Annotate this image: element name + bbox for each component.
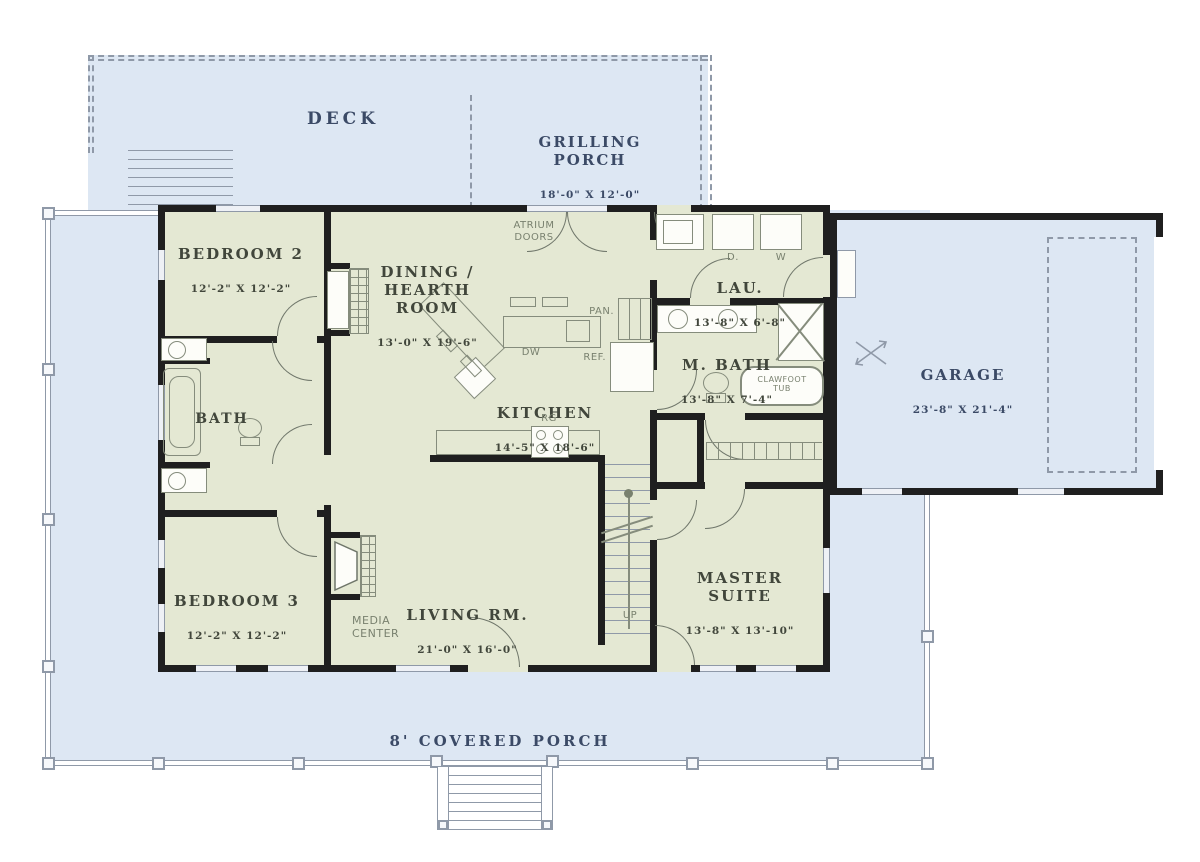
bath-label: BATH xyxy=(180,392,264,447)
dining-name: DINING / HEARTH ROOM xyxy=(350,263,505,317)
master-suite-dims: 13'-8" X 13'-10" xyxy=(665,625,815,638)
media-center-wall xyxy=(324,532,331,600)
closet-rod xyxy=(706,442,822,460)
porch-post xyxy=(42,207,55,220)
porch-post xyxy=(921,630,934,643)
kitchen-label: KITCHEN 14'-5" X 18'-6" xyxy=(470,385,620,474)
island-sink xyxy=(566,320,590,342)
media-center-shelving xyxy=(360,535,376,597)
porch-rail xyxy=(45,210,51,766)
front-steps xyxy=(437,766,553,830)
garage-door-dashed-line xyxy=(1047,237,1137,473)
wall xyxy=(598,455,605,645)
stair-arrow-dot xyxy=(624,489,633,498)
deck-rail xyxy=(88,55,708,61)
living-dims: 21'-0" X 16'-0" xyxy=(390,644,545,657)
laundry-dims: 13'-8" X 6'-8" xyxy=(665,317,815,330)
porch-post xyxy=(42,513,55,526)
porch-rail xyxy=(45,210,160,216)
laundry-label: LAU. 13'-8" X 6'-8" xyxy=(665,260,815,349)
window xyxy=(158,250,165,280)
master-bath-name: M. BATH xyxy=(652,356,802,374)
porch-post xyxy=(542,820,552,830)
clawfoot-tub-label: CLAWFOOT TUB xyxy=(748,375,816,393)
grilling-porch-name: GRILLING PORCH xyxy=(506,133,674,169)
covered-porch-name: 8' COVERED PORCH xyxy=(380,732,620,750)
covered-porch-label: 8' COVERED PORCH xyxy=(380,713,620,769)
master-suite-label: MASTER SUITE 13'-8" X 13'-10" xyxy=(665,550,815,657)
porch-post xyxy=(292,757,305,770)
wall xyxy=(650,482,705,489)
wall xyxy=(745,482,830,489)
window xyxy=(268,665,308,672)
laundry-name: LAU. xyxy=(665,279,815,297)
pantry-label: PAN. xyxy=(582,306,614,318)
garage-label: GARAGE 23'-8" X 21'-4" xyxy=(878,347,1048,436)
grilling-porch-dims: 18'-0" X 12'-0" xyxy=(506,189,674,202)
wall xyxy=(165,510,277,517)
window xyxy=(823,548,830,593)
bedroom3-dims: 12'-2" X 12'-2" xyxy=(163,630,311,643)
window xyxy=(158,540,165,568)
bedroom3-name: BEDROOM 3 xyxy=(163,592,311,610)
porch-post xyxy=(826,757,839,770)
window xyxy=(756,665,796,672)
tv-icon xyxy=(333,540,359,592)
atrium-doors-label: ATRIUM DOORS xyxy=(505,220,563,243)
wall xyxy=(830,213,1163,220)
garage-bench xyxy=(837,250,856,298)
wall xyxy=(317,336,331,343)
door-opening xyxy=(655,665,691,672)
stairs-up-label: UP xyxy=(616,610,644,622)
range-label: RG xyxy=(535,413,563,425)
window xyxy=(862,488,902,495)
sink xyxy=(168,472,186,490)
refrigerator-label: REF. xyxy=(570,352,606,364)
window xyxy=(216,205,260,212)
porch-post xyxy=(921,757,934,770)
bedroom2-label: BEDROOM 2 12'-2" X 12'-2" xyxy=(168,226,314,315)
sink xyxy=(168,341,186,359)
dining-label: DINING / HEARTH ROOM 13'-0" X 19'-6" xyxy=(350,244,505,369)
porch-post xyxy=(686,757,699,770)
pantry-cabinet xyxy=(618,298,652,340)
bar-stool xyxy=(510,297,536,307)
bedroom2-dims: 12'-2" X 12'-2" xyxy=(168,283,314,296)
kitchen-dims: 14'-5" X 18'-6" xyxy=(470,442,620,455)
bar-stool xyxy=(542,297,568,307)
garage-dims: 23'-8" X 21'-4" xyxy=(878,404,1048,417)
porch-post xyxy=(42,757,55,770)
porch-post xyxy=(42,660,55,673)
wall xyxy=(317,510,331,517)
deck-steps xyxy=(128,150,233,210)
bedroom2-name: BEDROOM 2 xyxy=(168,245,314,263)
dryer xyxy=(712,214,754,250)
deck-rail xyxy=(88,55,94,153)
deck-porch-divider xyxy=(470,95,472,208)
window xyxy=(700,665,736,672)
media-center-label: MEDIA CENTER xyxy=(352,615,416,640)
washer-label: W xyxy=(771,252,791,264)
master-suite-name: MASTER SUITE xyxy=(665,569,815,605)
deck-label: DECK xyxy=(283,90,403,149)
garage-name: GARAGE xyxy=(878,366,1048,384)
porch-post xyxy=(152,757,165,770)
fireplace-wall xyxy=(324,330,350,336)
laundry-sink xyxy=(663,220,693,244)
bedroom3-label: BEDROOM 3 12'-2" X 12'-2" xyxy=(163,573,311,662)
fireplace-firebox xyxy=(327,271,349,329)
washer xyxy=(760,214,802,250)
porch-post xyxy=(438,820,448,830)
deck-name: DECK xyxy=(283,109,403,129)
porch-post xyxy=(42,363,55,376)
dining-dims: 13'-0" X 19'-6" xyxy=(350,337,505,350)
fireplace-wall xyxy=(324,263,350,269)
grilling-porch-columns xyxy=(700,55,712,210)
garage-service-door-opening xyxy=(823,255,830,297)
window xyxy=(1018,488,1064,495)
window xyxy=(196,665,236,672)
dryer-label: D. xyxy=(723,252,743,264)
wall xyxy=(324,600,331,672)
bath-name: BATH xyxy=(180,411,264,428)
garage-door-opening xyxy=(1154,237,1165,470)
master-bath-dims: 13'-8" X 7'-4" xyxy=(652,394,802,407)
porch-rail xyxy=(924,492,930,766)
grilling-porch-label: GRILLING PORCH 18'-0" X 12'-0" xyxy=(506,114,674,221)
wall xyxy=(830,213,837,495)
floor-plan: DECK GRILLING PORCH 18'-0" X 12'-0" GARA… xyxy=(0,0,1200,862)
dishwasher-label: DW xyxy=(516,347,546,359)
stair-arrow-line xyxy=(628,494,630,629)
